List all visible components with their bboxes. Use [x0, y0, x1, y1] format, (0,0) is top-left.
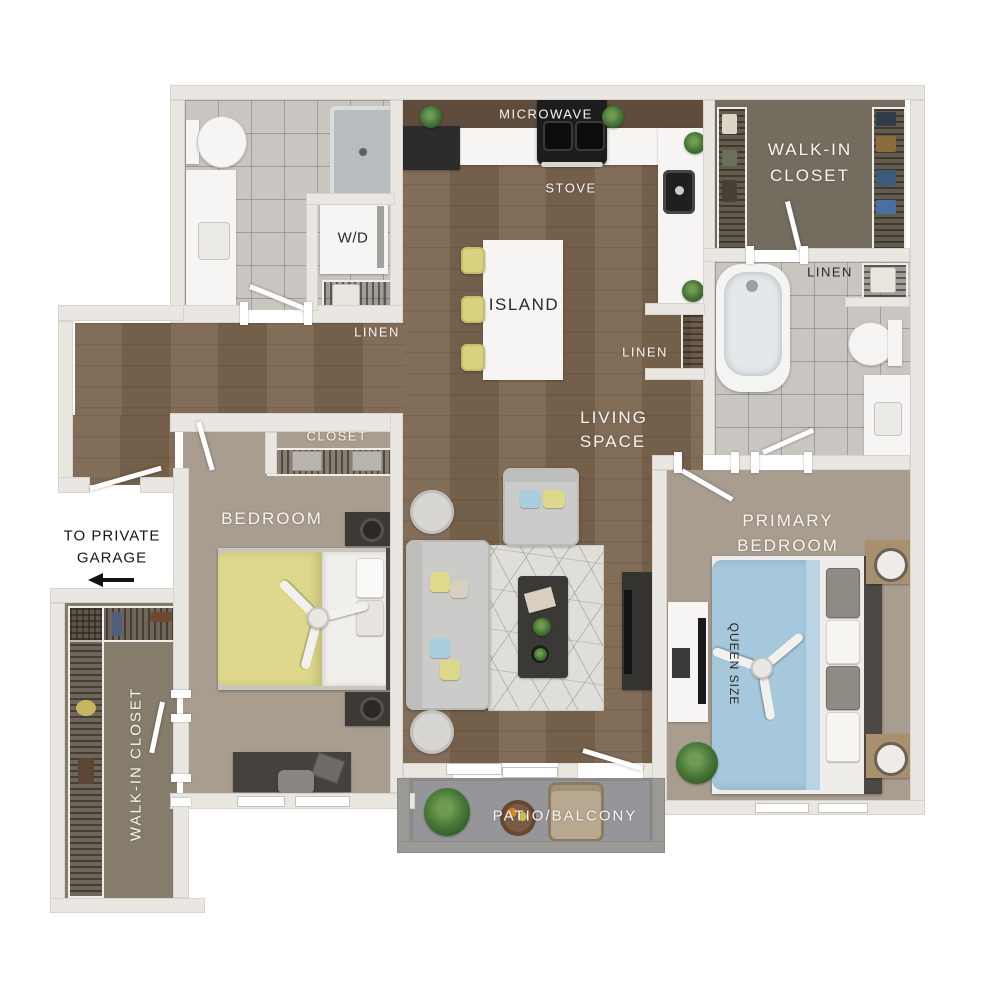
toilet-tank — [888, 320, 902, 366]
armchair-back — [503, 468, 579, 482]
shoes — [150, 612, 172, 622]
hanging-clothes — [876, 200, 896, 214]
sliding-door-panel — [446, 763, 502, 775]
wall — [390, 100, 403, 323]
wall — [643, 763, 653, 778]
door-jamb — [804, 452, 812, 473]
wall — [50, 898, 205, 913]
wall — [645, 368, 705, 380]
media-box — [672, 648, 690, 678]
hanging-clothes — [112, 612, 122, 636]
window — [237, 796, 285, 807]
throw-pillow — [430, 572, 450, 592]
kitchen-faucet — [675, 186, 684, 195]
stove-label: STOVE — [545, 181, 596, 196]
island-stool — [461, 247, 485, 274]
wall — [703, 100, 715, 455]
wall — [58, 477, 90, 493]
laundry-linen-label: LINEN — [354, 325, 400, 340]
wall — [173, 800, 189, 898]
window — [755, 803, 809, 813]
bed-blanket-fold — [806, 560, 820, 790]
wall — [802, 248, 910, 262]
side-table — [410, 490, 454, 534]
tv — [624, 590, 632, 674]
hanging-clothes — [876, 170, 896, 186]
plant — [602, 106, 624, 128]
window — [295, 796, 350, 807]
pillow — [826, 666, 860, 710]
wall — [558, 763, 578, 778]
closet-shelf — [68, 606, 104, 898]
throw-pillow — [450, 580, 468, 598]
wall — [50, 603, 65, 913]
island-stool — [461, 344, 485, 371]
window — [818, 803, 868, 813]
island-stool — [461, 296, 485, 323]
table-lamp — [360, 518, 384, 542]
island-label: ISLAND — [489, 295, 559, 315]
refrigerator — [403, 126, 460, 170]
hanging-clothes — [722, 150, 737, 166]
wall — [170, 793, 415, 809]
primary-bath-linen-label: LINEN — [807, 265, 853, 280]
hat — [76, 700, 96, 716]
wall — [845, 297, 910, 307]
garage-label-line1: TO PRIVATE — [64, 528, 161, 545]
wall — [808, 455, 910, 470]
wall — [173, 468, 189, 693]
hanging-clothes — [722, 114, 737, 134]
table-lamp — [874, 742, 908, 776]
vanity-sink — [874, 402, 902, 436]
wall — [140, 477, 175, 493]
wall — [173, 717, 189, 777]
throw-pillow — [543, 490, 565, 508]
door-jamb — [171, 690, 191, 698]
bedroom-closet-label: CLOSET — [306, 429, 367, 444]
wall — [58, 321, 73, 493]
door-jamb — [674, 452, 682, 473]
hanging-clothes — [876, 136, 896, 152]
throw-pillow — [520, 490, 540, 508]
door-jamb — [171, 714, 191, 722]
wall — [910, 100, 925, 815]
pillow — [826, 568, 860, 618]
bedroom-label: BEDROOM — [221, 509, 323, 529]
washer-dryer-door — [377, 206, 384, 268]
burner — [543, 121, 573, 151]
desk-chair — [278, 770, 314, 794]
hanging-clothes — [876, 112, 896, 126]
wall — [308, 305, 403, 323]
pillow — [356, 558, 384, 598]
wall — [652, 470, 667, 800]
wall — [306, 193, 318, 311]
wall — [645, 303, 705, 315]
wall — [58, 305, 185, 321]
closet-box — [292, 451, 322, 471]
hanging-clothes — [722, 180, 737, 202]
closet-box — [352, 451, 382, 471]
sofa-back — [406, 540, 422, 710]
garage-label-line2: GARAGE — [77, 550, 147, 567]
toilet-bowl — [197, 116, 247, 168]
living-space-label-line2: SPACE — [580, 432, 646, 452]
door-jamb — [731, 452, 739, 473]
sliding-door-panel — [502, 767, 558, 778]
stove-handle — [541, 162, 603, 167]
patio-balcony-label: PATIO/BALCONY — [493, 808, 638, 825]
primary-bedroom-label-line1: PRIMARY — [742, 511, 833, 531]
door-jamb — [171, 798, 191, 806]
table-lamp — [874, 548, 908, 582]
door-jamb — [304, 302, 312, 325]
side-table — [410, 710, 454, 754]
wall — [50, 588, 182, 603]
bathtub-drain — [746, 280, 758, 292]
linen-basket — [870, 267, 896, 293]
pillow — [826, 712, 860, 762]
walk-in-closet-top-label-line1: WALK-IN — [768, 140, 852, 160]
primary-bedroom-label-line2: BEDROOM — [737, 536, 839, 556]
plant — [676, 742, 718, 784]
hall-linen-label: LINEN — [622, 345, 668, 360]
microwave-label: MICROWAVE — [499, 107, 593, 122]
door-jamb — [800, 246, 808, 264]
closet-shelf — [267, 448, 403, 476]
pillow — [826, 620, 860, 664]
entry-floor — [73, 415, 175, 485]
wall — [170, 85, 925, 100]
wall — [306, 193, 395, 205]
door-jamb — [746, 246, 754, 264]
walk-in-closet-top-label-line2: CLOSET — [770, 166, 850, 186]
vanity-sink — [198, 222, 230, 260]
plant — [682, 280, 704, 302]
throw-pillow — [430, 638, 450, 658]
hanging-clothes — [78, 758, 94, 784]
door-jamb — [171, 774, 191, 782]
wall — [170, 413, 403, 432]
wall — [390, 413, 403, 793]
shower-drain — [359, 148, 367, 156]
wall — [265, 432, 277, 474]
washer-dryer-label: W/D — [338, 230, 369, 247]
walk-in-closet-left-label: WALK-IN CLOSET — [128, 687, 145, 841]
patio-plant — [424, 788, 470, 836]
floor-plan: MICROWAVE STOVE ISLAND WALK-IN CLOSET LI… — [0, 0, 1000, 1000]
queen-size-label: QUEEN SIZE — [727, 623, 741, 706]
table-lamp — [360, 697, 384, 721]
door-jamb — [240, 302, 248, 325]
wall — [170, 100, 185, 323]
plant — [533, 618, 551, 636]
throw-pillow — [440, 660, 460, 680]
plant — [420, 106, 442, 128]
burner — [575, 121, 605, 151]
door-jamb — [751, 452, 759, 473]
tv — [698, 618, 706, 704]
plant — [534, 648, 547, 661]
wall — [183, 305, 245, 323]
wall — [703, 248, 752, 262]
living-space-label-line1: LIVING — [580, 408, 648, 428]
patio-wall — [397, 841, 665, 853]
